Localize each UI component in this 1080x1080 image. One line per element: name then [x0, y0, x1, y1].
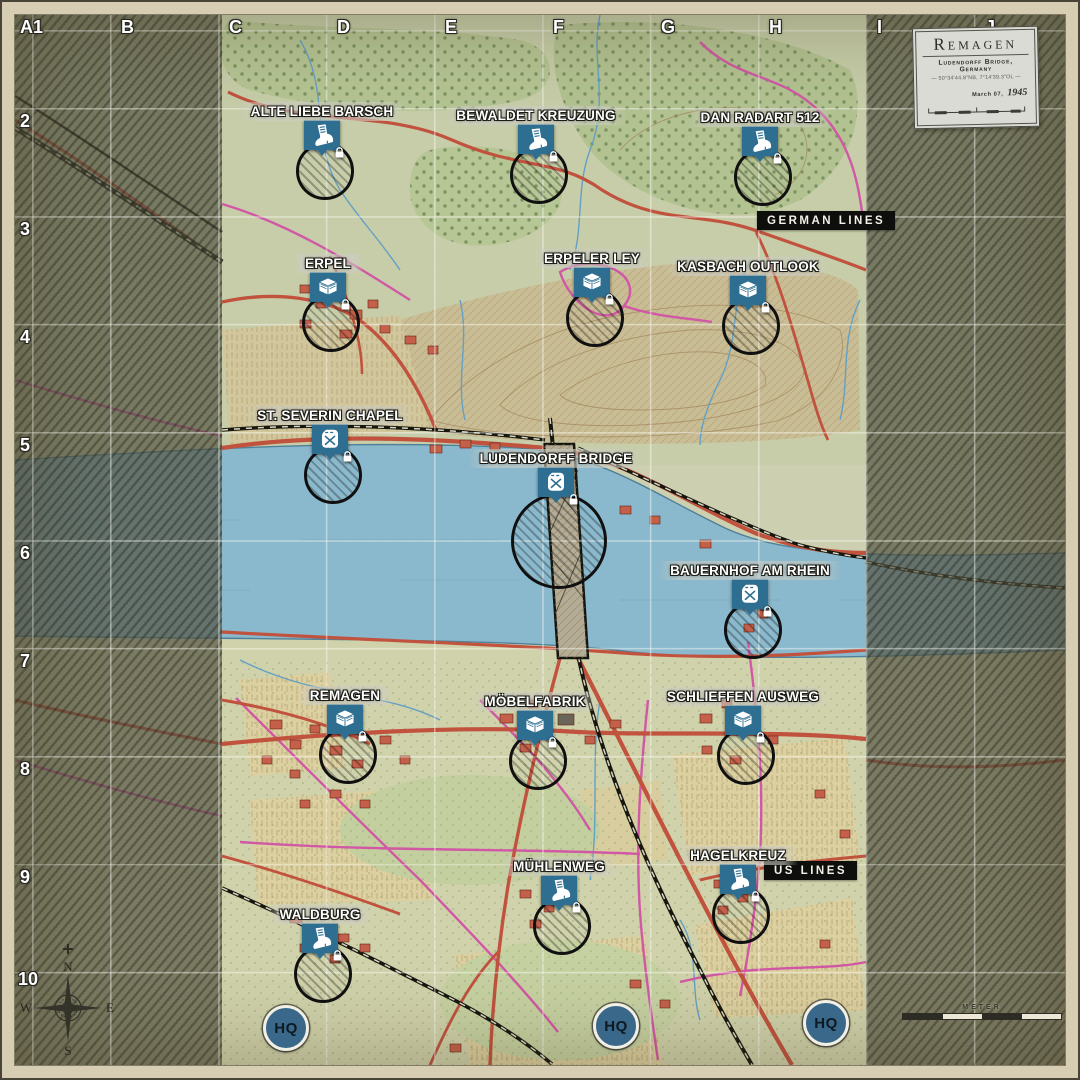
infantry-boot-icon[interactable] [742, 126, 778, 156]
grid-row-3: 3 [20, 220, 30, 238]
hq-marker-east[interactable]: HQ [803, 1000, 849, 1046]
boot-glyph [524, 127, 548, 151]
boot-glyph [308, 926, 332, 950]
fuel-glyph [544, 470, 568, 494]
objective-label: SCHLIEFFEN AUSWEG [655, 687, 831, 706]
grid-row-6: 6 [20, 544, 30, 562]
objective-label: ALTE LIEBE BARSCH [239, 102, 406, 121]
lock-icon [771, 152, 784, 165]
fuel-can-icon[interactable] [732, 579, 768, 609]
grid-col-b: B [121, 18, 134, 36]
lock-icon [749, 890, 762, 903]
infantry-boot-icon[interactable] [518, 124, 554, 154]
grid-col-h: H [769, 18, 782, 36]
map-year: 1945 [1007, 87, 1027, 98]
crate-glyph [731, 708, 755, 732]
supply-crate-icon[interactable] [310, 272, 346, 302]
scale-label: METER [902, 1004, 1062, 1011]
hq-label: HQ [274, 1020, 298, 1037]
map-coordinates: — 50°34'44.8"NB, 7°14'39.3"OL — [923, 74, 1029, 82]
lock-icon [341, 450, 354, 463]
map-title: Remagen [922, 33, 1028, 57]
infantry-boot-icon[interactable] [304, 120, 340, 150]
grid-col-f: F [553, 18, 564, 36]
boot-glyph [748, 129, 772, 153]
grid-row-10: 10 [18, 970, 38, 988]
scale-ruler [902, 1013, 1062, 1020]
lock-icon [339, 298, 352, 311]
boot-glyph [726, 867, 750, 891]
grid-row-4: 4 [20, 328, 30, 346]
grid-row-2: 2 [20, 112, 30, 130]
objective-label: ERPELER LEY [532, 249, 652, 268]
objective-label: ERPEL [293, 254, 363, 273]
lock-icon [333, 146, 346, 159]
lock-icon [761, 605, 774, 618]
infantry-boot-icon[interactable] [541, 875, 577, 905]
grid-row-7: 7 [20, 652, 30, 670]
supply-crate-icon[interactable] [327, 704, 363, 734]
lock-icon [754, 731, 767, 744]
fuel-can-icon[interactable] [312, 424, 348, 454]
lock-icon [546, 736, 559, 749]
supply-crate-icon[interactable] [730, 275, 766, 305]
grid-col-g: G [661, 18, 675, 36]
objective-label: HAGELKREUZ [678, 846, 798, 865]
objective-label: MÜHLENWEG [501, 857, 617, 876]
crate-glyph [523, 713, 547, 737]
grid-row-8: 8 [20, 760, 30, 778]
crate-glyph [580, 270, 604, 294]
objective-label: ST. SEVERIN CHAPEL [245, 406, 414, 425]
supply-crate-icon[interactable] [574, 267, 610, 297]
lock-icon [570, 901, 583, 914]
grid-col-d: D [337, 18, 350, 36]
hq-marker-center[interactable]: HQ [593, 1003, 639, 1049]
hq-label: HQ [604, 1018, 628, 1035]
tactical-map[interactable]: A1 B C D E F G H I J 2 3 4 5 6 7 8 9 10 … [0, 0, 1080, 1080]
boot-glyph [547, 878, 571, 902]
lock-icon [759, 301, 772, 314]
card-scale-ruler [925, 104, 1029, 115]
lock-icon [567, 493, 580, 506]
crate-glyph [333, 707, 357, 731]
lock-icon [331, 949, 344, 962]
grid-col-c: C [229, 18, 242, 36]
grid-row-9: 9 [20, 868, 30, 886]
map-scale-bar: METER [902, 1004, 1062, 1020]
supply-crate-icon[interactable] [725, 705, 761, 735]
objective-label: BEWALDET KREUZUNG [444, 106, 627, 125]
supply-crate-icon[interactable] [517, 710, 553, 740]
fuel-glyph [738, 582, 762, 606]
lock-icon [603, 293, 616, 306]
objective-label: MÖBELFABRIK [472, 692, 597, 711]
grid-col-e: E [445, 18, 457, 36]
infantry-boot-icon[interactable] [302, 923, 338, 953]
objective-label: LUDENDORFF BRIDGE [468, 449, 645, 468]
objective-label: BAUERNHOF AM RHEIN [658, 561, 842, 580]
grid-row-5: 5 [20, 436, 30, 454]
grid-col-a1: A1 [20, 18, 43, 36]
grid-col-i: I [877, 18, 882, 36]
crate-glyph [316, 275, 340, 299]
german-lines-banner: GERMAN LINES [757, 211, 895, 230]
objective-label: DAN RADART 512 [688, 108, 831, 127]
objective-label: KASBACH OUTLOOK [665, 257, 831, 276]
fuel-can-icon[interactable] [538, 467, 574, 497]
hq-label: HQ [814, 1015, 838, 1032]
objective-zone-circle [511, 493, 607, 589]
map-title-card: Remagen Ludendorff Bridge, Germany — 50°… [912, 26, 1040, 130]
map-subtitle: Ludendorff Bridge, Germany [923, 58, 1029, 74]
boot-glyph [310, 123, 334, 147]
infantry-boot-icon[interactable] [720, 864, 756, 894]
lock-icon [356, 730, 369, 743]
map-date: March 07, [972, 91, 1003, 98]
crate-glyph [736, 278, 760, 302]
objective-label: REMAGEN [298, 686, 392, 705]
fuel-glyph [318, 427, 342, 451]
hq-marker-west[interactable]: HQ [263, 1005, 309, 1051]
objective-label: WALDBURG [267, 905, 372, 924]
lock-icon [547, 150, 560, 163]
